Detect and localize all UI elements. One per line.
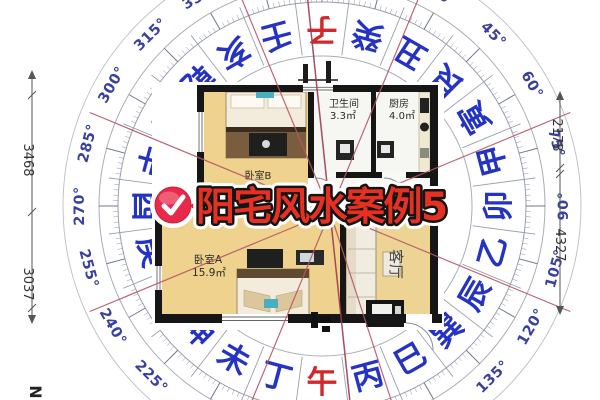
mountain-label: 丙 — [348, 356, 387, 399]
mountain-label: 卯 — [481, 191, 517, 222]
degree-label: 30° — [426, 0, 459, 11]
degree-label: 90° — [556, 192, 572, 221]
room-label-living: 客厅 — [387, 249, 405, 279]
desk-item — [262, 140, 270, 148]
page-title: 阳宅风水案例5 — [196, 185, 447, 230]
dimension-left: 3468 3037 — [20, 70, 36, 324]
mountain-label: 巳 — [388, 336, 433, 383]
degree-label: 330° — [180, 0, 222, 13]
room-label-kitchen: 厨房 — [389, 97, 409, 110]
mountain-label: 甲 — [472, 141, 515, 180]
wall-bottom — [155, 314, 442, 323]
mountain-label: 亥 — [211, 29, 256, 76]
degree-label: 255° — [75, 247, 101, 289]
degree-label: 300° — [96, 64, 130, 106]
bedroomA-desk — [247, 249, 283, 268]
mountain-label: 未 — [211, 336, 256, 383]
wall-bathroom-left — [308, 88, 314, 178]
kitchen-cabinet — [420, 148, 429, 158]
dimension-left-top-label: 3468 — [20, 143, 35, 176]
room-label-bathroom: 卫生间 — [329, 97, 359, 110]
sector-divider — [295, 357, 302, 400]
room-area-bathroom: 3.3㎡ — [330, 110, 356, 122]
room-label-bedroomB: 卧室B — [245, 169, 272, 182]
room-area-kitchen: 4.0㎡ — [389, 110, 415, 122]
bed-blanket-stripe — [226, 127, 306, 132]
sector-divider — [342, 4, 349, 56]
sector-divider — [473, 226, 525, 233]
degree-label: 285° — [75, 122, 101, 164]
degree-label: 45° — [477, 19, 509, 51]
dimension-right-bottom-label: 4327 — [552, 228, 567, 261]
north-label: N — [26, 385, 45, 398]
degree-label: 270° — [72, 186, 88, 226]
entry-door-icon — [311, 312, 318, 328]
kitchen-stove — [420, 123, 429, 132]
room-area-bedroomA: 15.9㎡ — [192, 267, 226, 279]
feng-shui-diagram: 子癸丑艮寅甲卯乙辰巽巳丙午丁未坤申庚酉辛戌乾亥壬30°45°60°75°90°1… — [0, 0, 600, 400]
room-label-bedroomA: 卧室A — [194, 253, 223, 266]
mountain-label: 午 — [307, 365, 338, 400]
mountain-label: 丑 — [388, 29, 433, 76]
kitchen-sink — [420, 98, 429, 113]
mountain-label: 寅 — [452, 95, 499, 140]
mountain-label: 乙 — [472, 232, 515, 271]
scene-canvas: 子癸丑艮寅甲卯乙辰巽巳丙午丁未坤申庚酉辛戌乾亥壬30°45°60°75°90°1… — [0, 0, 600, 400]
degree-label: 240° — [96, 306, 130, 348]
dimension-left-bottom-label: 3037 — [20, 267, 35, 300]
bed-accent — [264, 299, 278, 308]
mountain-label: 癸 — [348, 14, 387, 57]
mountain-label: 丁 — [257, 356, 296, 399]
bed-headboard — [237, 269, 309, 278]
degree-label: 60° — [517, 68, 545, 101]
degree-label: 120° — [515, 306, 549, 348]
dimension-right-top-label: 2178 — [549, 118, 564, 151]
